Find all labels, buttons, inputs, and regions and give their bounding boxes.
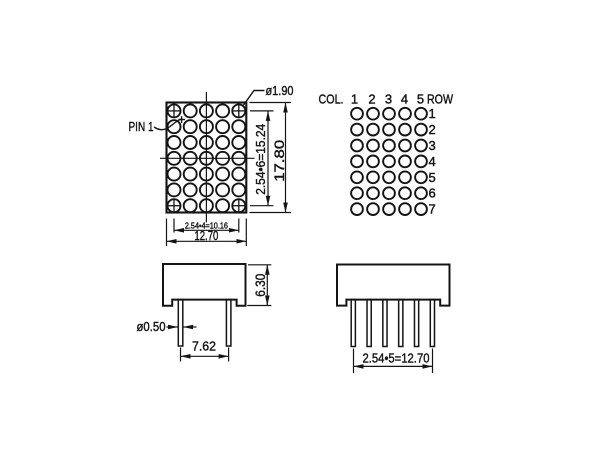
svg-text:6.30: 6.30 — [252, 274, 268, 297]
svg-text:PIN 1: PIN 1 — [129, 119, 154, 134]
svg-text:4: 4 — [401, 92, 408, 107]
svg-text:2.54•5=12.70: 2.54•5=12.70 — [363, 351, 430, 366]
svg-text:COL.: COL. — [319, 92, 344, 107]
svg-text:3: 3 — [429, 138, 436, 153]
svg-text:12.70: 12.70 — [194, 228, 218, 243]
svg-text:2.54•6=15.24: 2.54•6=15.24 — [253, 124, 268, 195]
svg-text:ø1.90: ø1.90 — [266, 83, 294, 98]
svg-text:5: 5 — [417, 92, 424, 107]
svg-text:17.80: 17.80 — [271, 140, 287, 182]
svg-text:6: 6 — [429, 186, 436, 201]
svg-text:2: 2 — [368, 92, 375, 107]
svg-text:3: 3 — [385, 92, 392, 107]
svg-text:5: 5 — [429, 170, 436, 185]
svg-text:ø0.50: ø0.50 — [137, 319, 166, 334]
svg-text:1: 1 — [351, 92, 358, 107]
svg-text:7.62: 7.62 — [192, 339, 216, 354]
svg-text:2: 2 — [429, 122, 436, 137]
svg-text:ROW: ROW — [427, 92, 454, 107]
svg-text:1: 1 — [429, 106, 436, 121]
svg-text:7: 7 — [429, 202, 436, 217]
svg-text:4: 4 — [429, 154, 436, 169]
